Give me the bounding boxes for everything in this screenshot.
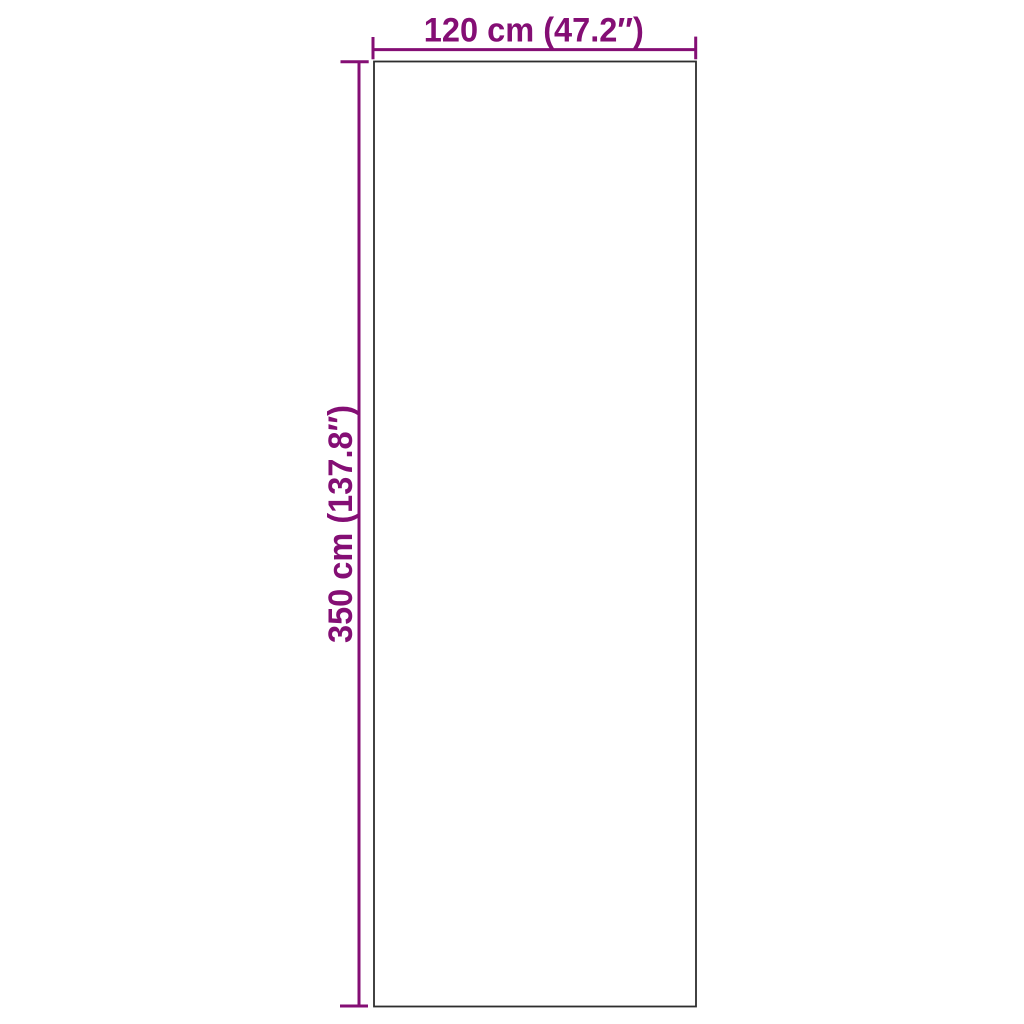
svg-text:350 cm (137.8″): 350 cm (137.8″) <box>322 405 360 643</box>
svg-text:120 cm (47.2″): 120 cm (47.2″) <box>424 12 644 50</box>
